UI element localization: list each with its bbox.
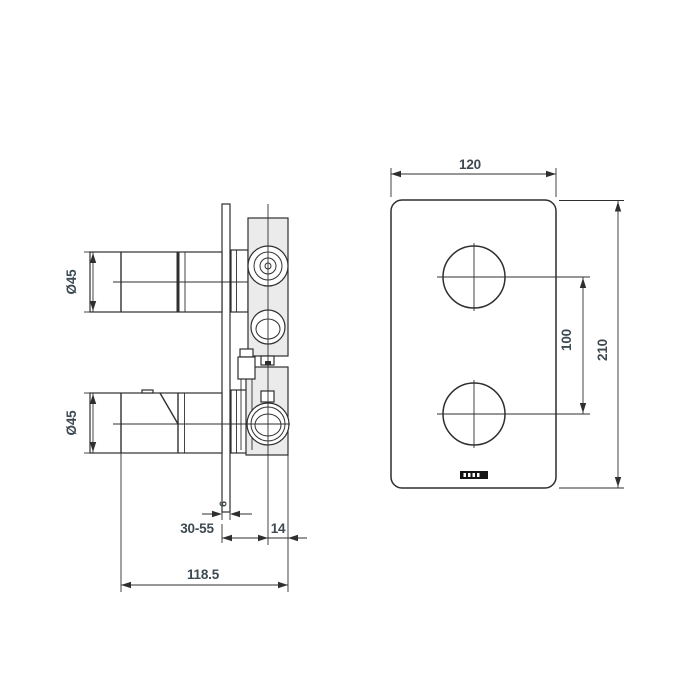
front-view: 120 210 100: [391, 157, 624, 488]
logo-letter-mark: [464, 473, 467, 477]
dimension-arrow-up: [580, 278, 586, 288]
dimension-arrow-down: [615, 477, 621, 487]
dimension-arrow-right: [212, 511, 222, 517]
logo-letter-mark: [477, 473, 480, 477]
lower-cartridge-stem: [261, 391, 274, 402]
dim-label-plate-width: 120: [459, 157, 481, 172]
dim-label-plate-height: 210: [595, 339, 610, 361]
dimension-arrow-left: [121, 582, 131, 588]
dimension-arrow-right: [546, 171, 556, 177]
stop-valve-cap: [240, 349, 253, 357]
dimension-arrow-left: [230, 511, 240, 517]
bottom-handle-notch: [142, 390, 153, 393]
dim-label-center-to-back: 14: [271, 521, 286, 536]
dim-label-total-depth: 118.5: [187, 567, 220, 582]
dimension-arrow-right: [258, 535, 268, 541]
logo-letter-mark: [468, 473, 471, 477]
dim-plate-width: 120: [391, 157, 556, 197]
trim-plate-edge: [222, 204, 230, 512]
dimension-arrow-right: [278, 582, 288, 588]
dimension-arrow-up: [615, 202, 621, 212]
dim-label-plate-thickness: 6: [218, 501, 230, 507]
dim-label-wall-depth-range: 30-55: [180, 521, 214, 536]
dimension-arrow-left: [288, 535, 298, 541]
dim-label-top-diameter: Ø45: [64, 269, 79, 295]
dim-label-bottom-diameter: Ø45: [64, 410, 79, 436]
mixer-installation-drawing: Ø45 Ø45 6 30-55 14: [0, 0, 700, 700]
dimension-arrow-down: [580, 403, 586, 413]
dim-handle-spacing: 100: [559, 277, 586, 414]
stop-valve-body: [238, 357, 255, 379]
top-cartridge-sleeve: [231, 250, 248, 312]
brand-logo: [460, 471, 488, 479]
dim-label-handle-spacing: 100: [559, 329, 574, 351]
dim-total-depth: 118.5: [121, 567, 288, 588]
logo-letter-mark: [473, 473, 476, 477]
dimension-arrow-left: [391, 171, 401, 177]
bottom-handle: [90, 393, 222, 453]
dimension-arrow-left: [222, 535, 232, 541]
side-view: Ø45 Ø45 6 30-55 14: [64, 204, 307, 592]
drawing-canvas: Ø45 Ø45 6 30-55 14: [0, 0, 700, 700]
